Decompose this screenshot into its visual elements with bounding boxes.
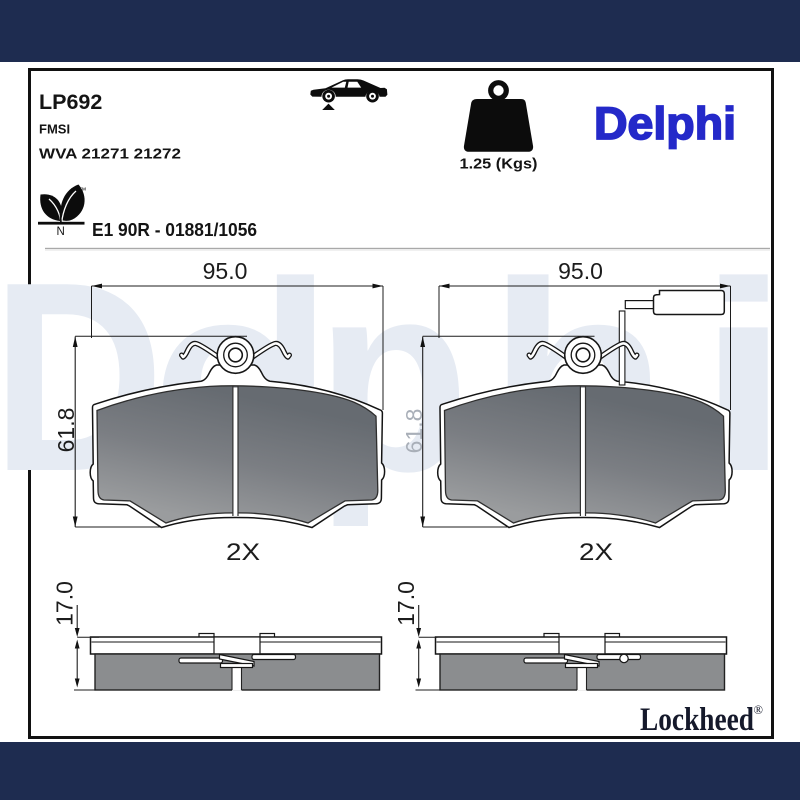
svg-text:LP692: LP692 (39, 90, 102, 114)
svg-text:®: ® (754, 703, 764, 717)
svg-text:61.8: 61.8 (53, 408, 79, 453)
svg-text:FMSI: FMSI (39, 122, 70, 137)
svg-text:Delphi: Delphi (594, 98, 736, 149)
svg-text:2X: 2X (226, 539, 260, 566)
svg-text:WVA 21271 21272: WVA 21271 21272 (39, 146, 181, 163)
svg-text:E1 90R - 01881/1056: E1 90R - 01881/1056 (92, 220, 257, 240)
svg-text:95.0: 95.0 (203, 258, 248, 284)
svg-text:N: N (57, 226, 65, 238)
svg-text:17.0: 17.0 (52, 581, 78, 626)
svg-text:2X: 2X (579, 539, 613, 566)
svg-text:™: ™ (79, 186, 87, 195)
svg-text:61.8: 61.8 (401, 409, 427, 454)
svg-text:Lockheed: Lockheed (640, 702, 754, 738)
svg-text:17.0: 17.0 (393, 581, 419, 626)
svg-text:95.0: 95.0 (558, 258, 603, 284)
svg-text:1.25 (Kgs): 1.25 (Kgs) (460, 157, 538, 173)
